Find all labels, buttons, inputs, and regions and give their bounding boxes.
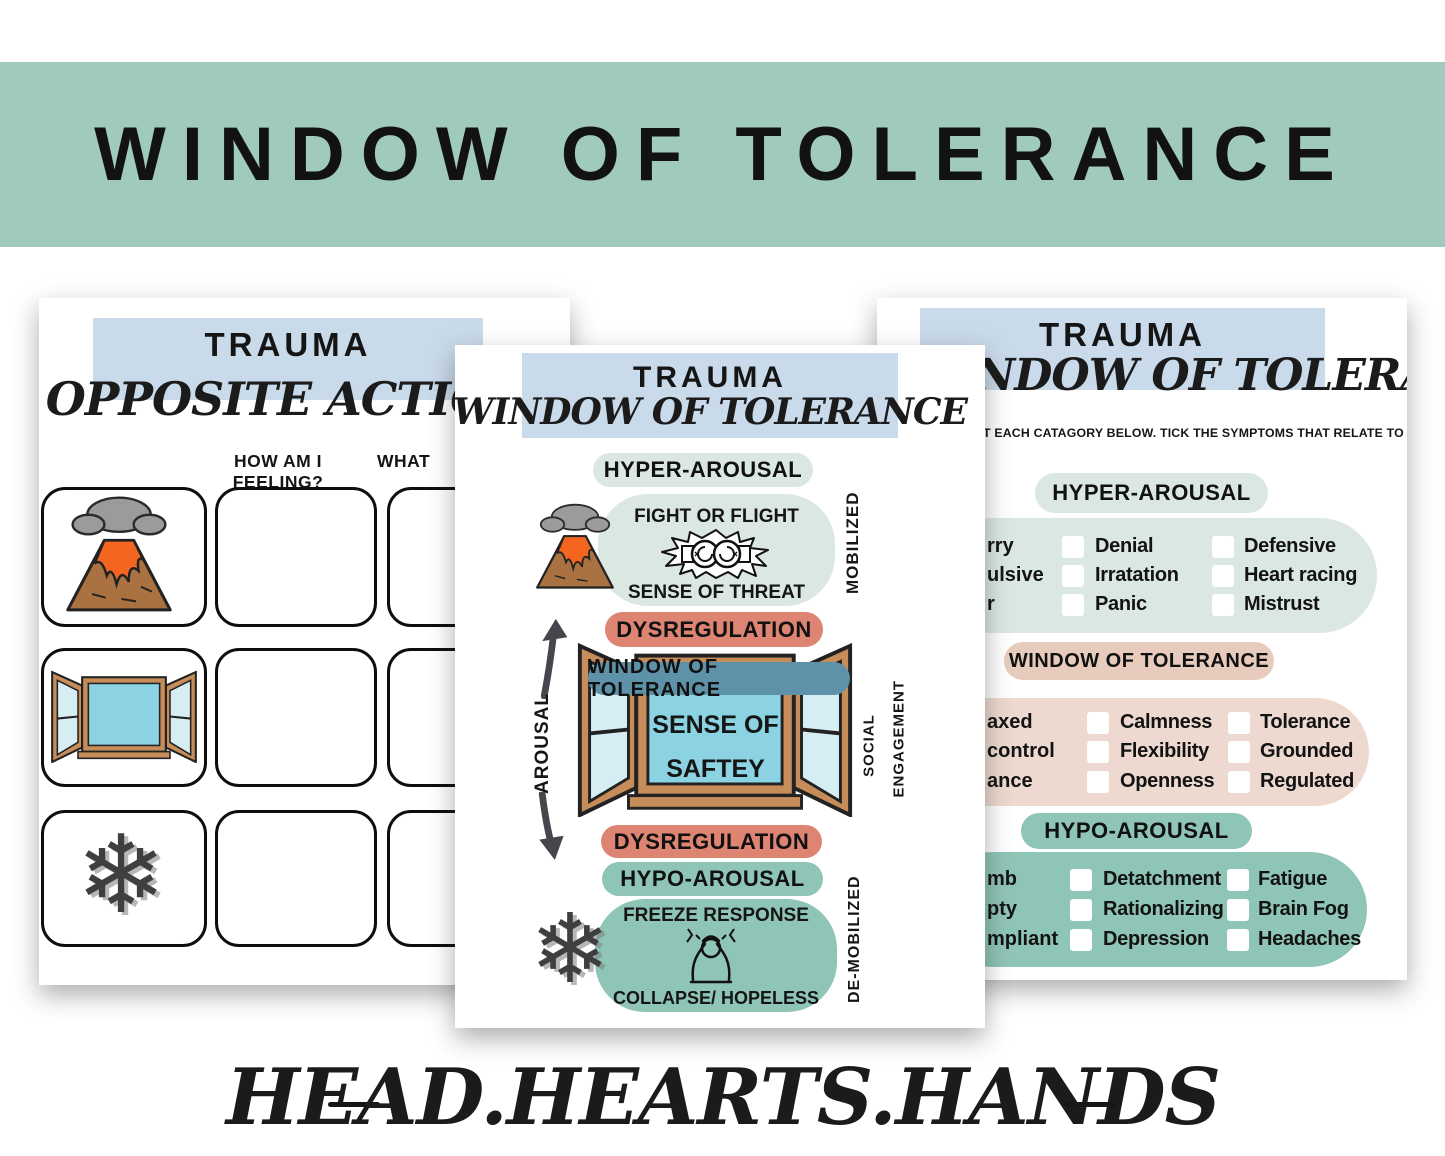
- symptom-fragment: rry: [987, 535, 1014, 558]
- grid-cell-empty[interactable]: [215, 487, 377, 627]
- snowflake-icon: ❄: [515, 901, 625, 997]
- symptom-fragment: pty: [987, 898, 1017, 921]
- left-page-title: TRAUMA: [93, 326, 483, 364]
- symptom-fragment: ance: [987, 770, 1033, 793]
- instruction-text: T EACH CATAGORY BELOW. TICK THE SYMPTOMS…: [983, 426, 1407, 440]
- grid-cell-empty[interactable]: [215, 810, 377, 947]
- symptom-label: Tolerance: [1260, 711, 1350, 734]
- center-page-title: TRAUMA: [522, 361, 898, 395]
- symptom-label: Mistrust: [1244, 593, 1319, 616]
- checkbox[interactable]: [1087, 712, 1109, 734]
- symptom-fragment: r: [987, 593, 995, 616]
- checkbox[interactable]: [1212, 565, 1234, 587]
- demobilized-label: DE-MOBILIZED: [846, 893, 864, 1003]
- checkbox[interactable]: [1212, 594, 1234, 616]
- symptom-label: Panic: [1095, 593, 1147, 616]
- symptom-label: Fatigue: [1258, 868, 1327, 891]
- main-title: WINDOW OF TOLERANCE: [94, 111, 1351, 198]
- mobilized-label: MOBILIZED: [843, 494, 863, 594]
- checkbox[interactable]: [1228, 741, 1250, 763]
- symptom-fragment: mb: [987, 868, 1017, 891]
- symptom-label: Regulated: [1260, 770, 1354, 793]
- checkbox[interactable]: [1070, 899, 1092, 921]
- checkbox[interactable]: [1062, 565, 1084, 587]
- checkbox[interactable]: [1227, 929, 1249, 951]
- symptom-fragment: control: [987, 740, 1055, 763]
- sense-of-safety-line2: SAFTEY: [643, 755, 788, 784]
- symptom-fragment: axed: [987, 711, 1033, 734]
- window-of-tolerance-pill: WINDOW OF TOLERANCE: [588, 662, 850, 695]
- dysregulation-bottom-pill: DYSREGULATION: [601, 825, 822, 858]
- symptom-label: Openness: [1120, 770, 1214, 793]
- collapse-hopeless-label: COLLAPSE/ HOPELESS: [595, 988, 837, 1009]
- freeze-response-label: FREEZE RESPONSE: [595, 905, 837, 927]
- section-pill-hyper: HYPER-AROUSAL: [1035, 473, 1268, 513]
- checkbox[interactable]: [1062, 536, 1084, 558]
- open-window-icon: [49, 670, 199, 763]
- symptom-label: Headaches: [1258, 928, 1361, 951]
- symptom-label: Irratation: [1095, 564, 1179, 587]
- worksheet-diagram: TRAUMA WINDOW OF TOLERANCE HYPER-AROUSAL…: [455, 345, 985, 1028]
- column-header-what-fragment: WHAT: [377, 451, 430, 472]
- symptom-fragment: ulsive: [987, 564, 1044, 587]
- stressed-person-icon: [681, 926, 741, 986]
- title-banner: WINDOW OF TOLERANCE: [0, 62, 1445, 247]
- symptom-label: Grounded: [1260, 740, 1353, 763]
- up-arrow-icon: [530, 617, 570, 699]
- down-arrow-icon: [530, 792, 570, 862]
- symptom-label: Defensive: [1244, 535, 1336, 558]
- right-page-subtitle-fragment: NDOW OF TOLERANCE: [975, 350, 1407, 401]
- symptom-label: Calmness: [1120, 711, 1212, 734]
- hyper-arousal-pill: HYPER-AROUSAL: [593, 453, 813, 487]
- engagement-label: ENGAGEMENT: [891, 688, 908, 798]
- volcano-icon: [530, 497, 620, 597]
- product-image: WINDOW OF TOLERANCE TRAUMA OPPOSITE ACTI…: [0, 0, 1445, 1156]
- symptom-label: Denial: [1095, 535, 1153, 558]
- symptom-label: Heart racing: [1244, 564, 1357, 587]
- symptom-label: Flexibility: [1120, 740, 1209, 763]
- footer-right-dash: [1064, 1102, 1116, 1107]
- checkbox[interactable]: [1070, 869, 1092, 891]
- sense-of-safety-line1: SENSE OF: [643, 711, 788, 740]
- section-pill-hypo: HYPO-AROUSAL: [1021, 813, 1252, 849]
- checkbox[interactable]: [1228, 712, 1250, 734]
- section-pill-window: WINDOW OF TOLERANCE: [1004, 642, 1274, 680]
- hypo-arousal-pill: HYPO-AROUSAL: [602, 862, 823, 896]
- symptom-label: Brain Fog: [1258, 898, 1349, 921]
- fight-or-flight-label: FIGHT OR FLIGHT: [598, 506, 835, 528]
- arousal-label: AROUSAL: [532, 694, 554, 794]
- boxing-gloves-icon: [660, 528, 772, 580]
- left-page-subtitle: OPPOSITE ACTION: [73, 372, 503, 426]
- checkbox[interactable]: [1087, 741, 1109, 763]
- checkbox[interactable]: [1062, 594, 1084, 616]
- center-page-subtitle: WINDOW OF TOLERANCE: [515, 391, 905, 433]
- grid-cell-empty[interactable]: [215, 648, 377, 787]
- social-label: SOCIAL: [861, 696, 878, 796]
- brand-logo: HEAD.HEARTS.HANDS: [385, 1052, 1061, 1143]
- checkbox[interactable]: [1228, 771, 1250, 793]
- checkbox[interactable]: [1087, 771, 1109, 793]
- symptom-label: Detatchment: [1103, 868, 1221, 891]
- volcano-icon: [57, 494, 181, 616]
- symptom-label: Rationalizing: [1103, 898, 1224, 921]
- snowflake-icon: ❄: [61, 822, 181, 930]
- checkbox[interactable]: [1227, 899, 1249, 921]
- symptom-fragment: mpliant: [987, 928, 1058, 951]
- checkbox[interactable]: [1070, 929, 1092, 951]
- symptom-label: Depression: [1103, 928, 1209, 951]
- sense-of-threat-label: SENSE OF THREAT: [598, 582, 835, 604]
- checkbox[interactable]: [1212, 536, 1234, 558]
- checkbox[interactable]: [1227, 869, 1249, 891]
